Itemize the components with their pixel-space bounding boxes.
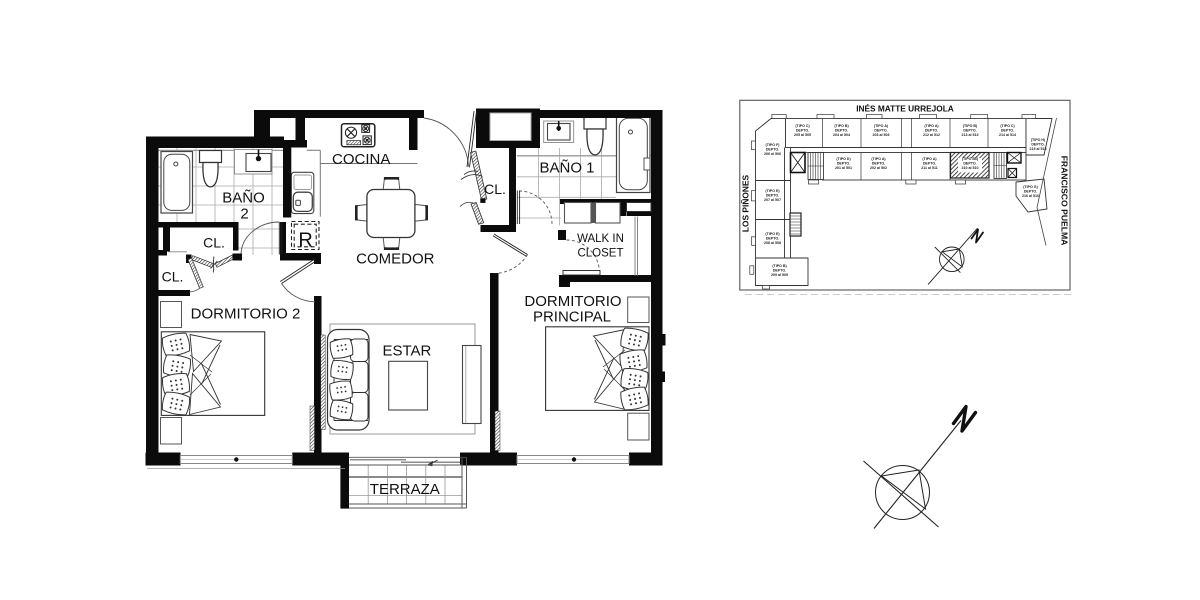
svg-text:206 al 506: 206 al 506 bbox=[764, 152, 781, 156]
svg-text:(TIPO E): (TIPO E) bbox=[765, 232, 780, 236]
svg-text:(TIPO A): (TIPO A) bbox=[922, 157, 937, 161]
svg-text:DEPTO.: DEPTO. bbox=[874, 129, 887, 133]
svg-text:DORMITORIO 2: DORMITORIO 2 bbox=[191, 306, 301, 323]
svg-text:TERRAZA: TERRAZA bbox=[370, 481, 440, 498]
svg-text:204 al 504: 204 al 504 bbox=[833, 133, 850, 137]
svg-text:(TIPO C): (TIPO C) bbox=[795, 124, 810, 128]
svg-text:(TIPO G): (TIPO G) bbox=[1023, 185, 1038, 189]
svg-text:DEPTO.: DEPTO. bbox=[963, 129, 976, 133]
svg-text:CL.: CL. bbox=[484, 181, 506, 197]
svg-text:(TIPO C): (TIPO C) bbox=[1000, 124, 1015, 128]
svg-text:215 al 515: 215 al 515 bbox=[1030, 147, 1047, 151]
svg-text:CLOSET: CLOSET bbox=[577, 248, 623, 260]
svg-text:DEPTO.: DEPTO. bbox=[766, 237, 779, 241]
svg-text:207 al 507: 207 al 507 bbox=[764, 198, 781, 202]
svg-text:CL.: CL. bbox=[203, 235, 225, 251]
svg-text:DEPTO.: DEPTO. bbox=[1024, 190, 1037, 194]
svg-text:LOS PIÑONES: LOS PIÑONES bbox=[741, 174, 751, 232]
svg-text:DORMITORIO: DORMITORIO bbox=[524, 293, 621, 310]
svg-text:DEPTO.: DEPTO. bbox=[1031, 143, 1044, 147]
svg-text:(TIPO D): (TIPO D) bbox=[836, 157, 851, 161]
svg-text:FRANCISCO PUELMA: FRANCISCO PUELMA bbox=[1060, 156, 1070, 246]
svg-text:(TIPO H): (TIPO H) bbox=[1031, 138, 1046, 142]
svg-text:WALK IN: WALK IN bbox=[577, 233, 624, 245]
svg-text:CL.: CL. bbox=[162, 269, 184, 285]
svg-text:DEPTO.: DEPTO. bbox=[925, 129, 938, 133]
svg-text:203 al 503: 203 al 503 bbox=[873, 133, 890, 137]
svg-text:DEPTO.: DEPTO. bbox=[835, 129, 848, 133]
svg-text:DEPTO.: DEPTO. bbox=[872, 162, 885, 166]
svg-text:(TIPO B): (TIPO B) bbox=[963, 124, 978, 128]
svg-text:ESTAR: ESTAR bbox=[382, 343, 431, 360]
svg-text:DEPTO.: DEPTO. bbox=[837, 162, 850, 166]
svg-text:COMEDOR: COMEDOR bbox=[356, 251, 435, 268]
svg-text:DEPTO.: DEPTO. bbox=[773, 269, 786, 273]
svg-text:DEPTO.: DEPTO. bbox=[923, 162, 936, 166]
svg-text:209 al 509: 209 al 509 bbox=[771, 273, 788, 277]
svg-text:205 al 505: 205 al 505 bbox=[794, 133, 811, 137]
svg-text:DEPTO.: DEPTO. bbox=[963, 162, 976, 166]
svg-text:BAÑO 1: BAÑO 1 bbox=[539, 160, 594, 177]
svg-text:216 al 516: 216 al 516 bbox=[1022, 194, 1039, 198]
svg-text:(TIPO B6): (TIPO B6) bbox=[962, 157, 979, 161]
svg-text:214 al 514: 214 al 514 bbox=[999, 133, 1016, 137]
svg-text:COCINA: COCINA bbox=[332, 151, 390, 168]
svg-text:(TIPO E): (TIPO E) bbox=[765, 189, 780, 193]
svg-text:202 al 502: 202 al 502 bbox=[870, 166, 887, 170]
svg-text:2: 2 bbox=[240, 206, 248, 223]
svg-text:(TIPO F): (TIPO F) bbox=[766, 143, 781, 147]
svg-text:208 al 508: 208 al 508 bbox=[764, 241, 781, 245]
svg-text:210 al 510: 210 al 510 bbox=[962, 166, 979, 170]
svg-text:DEPTO.: DEPTO. bbox=[1001, 129, 1014, 133]
svg-text:INÉS MATTE URREJOLA: INÉS MATTE URREJOLA bbox=[856, 104, 954, 114]
svg-text:201 al 501: 201 al 501 bbox=[835, 166, 852, 170]
svg-text:R: R bbox=[298, 230, 312, 252]
svg-text:BAÑO: BAÑO bbox=[222, 190, 265, 207]
svg-text:PRINCIPAL: PRINCIPAL bbox=[533, 309, 611, 326]
svg-text:(TIPO A): (TIPO A) bbox=[924, 124, 939, 128]
svg-text:(TIPO A): (TIPO A) bbox=[874, 124, 889, 128]
svg-text:(TIPO B): (TIPO B) bbox=[772, 264, 787, 268]
svg-text:DEPTO.: DEPTO. bbox=[766, 148, 779, 152]
svg-text:213 al 513: 213 al 513 bbox=[962, 133, 979, 137]
svg-text:(TIPO A): (TIPO A) bbox=[871, 157, 886, 161]
svg-text:212 al 512: 212 al 512 bbox=[923, 133, 940, 137]
svg-text:DEPTO.: DEPTO. bbox=[796, 129, 809, 133]
svg-text:(TIPO B): (TIPO B) bbox=[834, 124, 849, 128]
svg-text:211 al 511: 211 al 511 bbox=[921, 166, 938, 170]
svg-text:DEPTO.: DEPTO. bbox=[766, 194, 779, 198]
